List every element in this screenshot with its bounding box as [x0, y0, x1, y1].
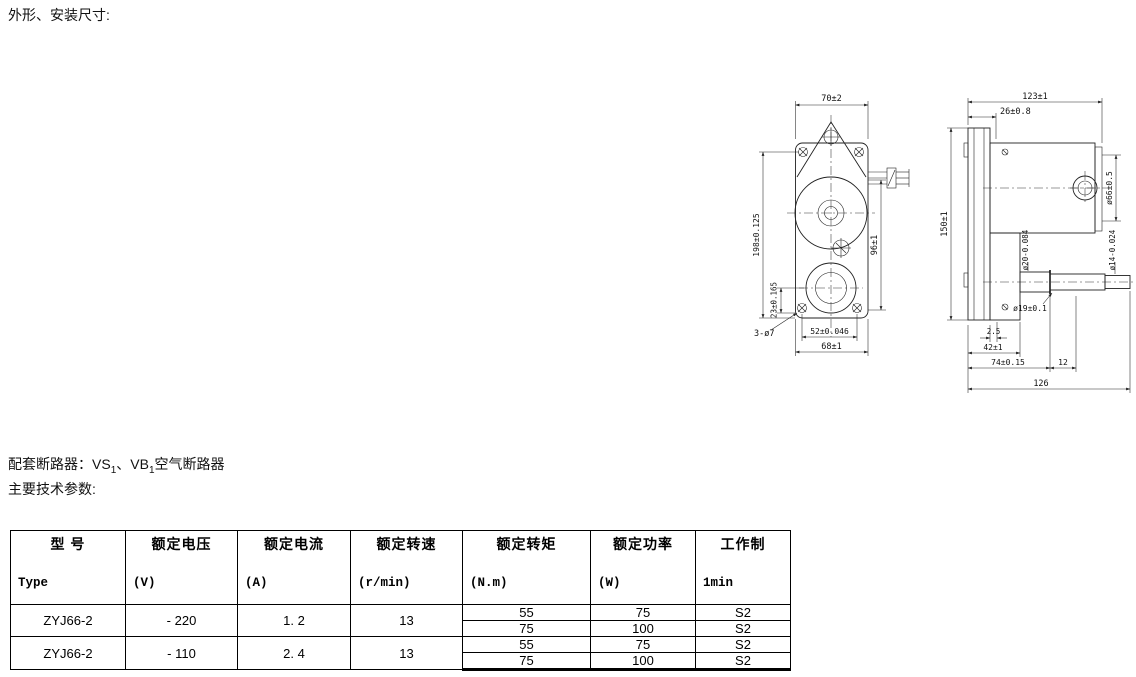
header-speed-en: (r/min)	[351, 576, 462, 590]
header-voltage: 额定电压(V)	[126, 531, 238, 605]
dim-case-length: 42±1	[983, 343, 1002, 352]
dim-length-overall: 126	[1033, 379, 1048, 389]
table-header-row: 型 号Type 额定电压(V) 额定电流(A) 额定转速(r/min) 额定转矩…	[11, 531, 791, 605]
header-type-en: Type	[11, 576, 125, 590]
cell-torque: 55	[463, 605, 591, 621]
cell-voltage: - 110	[126, 637, 238, 670]
cell-torque: 75	[463, 621, 591, 637]
cell-duty: S2	[696, 653, 791, 670]
cell-duty: S2	[696, 605, 791, 621]
header-duty-cn: 工作制	[696, 531, 790, 554]
dim-front-height-overall: 198±0.125	[752, 213, 761, 257]
cell-torque: 55	[463, 637, 591, 653]
cell-power: 75	[591, 637, 696, 653]
header-current: 额定电流(A)	[238, 531, 351, 605]
header-torque: 额定转矩(N.m)	[463, 531, 591, 605]
header-power-cn: 额定功率	[591, 531, 695, 554]
header-power-en: (W)	[591, 576, 695, 590]
side-view-dimensions: 123±1 26±0.8 150±1 ø66±0.5 ø20-0.084 ø14…	[940, 92, 1130, 393]
terminal-wires	[868, 168, 909, 188]
dim-side-body-dia: ø66±0.5	[1105, 171, 1114, 205]
header-speed: 额定转速(r/min)	[351, 531, 463, 605]
dim-front-height-body: 96±1	[870, 235, 880, 255]
header-voltage-cn: 额定电压	[126, 531, 237, 554]
motor-front-outline	[787, 115, 909, 337]
front-view-drawing: 70±2 198±0.125 96±1 23±0.165 52±0.046 68…	[735, 85, 930, 377]
dim-side-length-top: 123±1	[1022, 92, 1048, 102]
cell-voltage: - 220	[126, 605, 238, 637]
dim-plate-thickness: 2.5	[987, 327, 1001, 336]
dim-shoulder-length: 74±0.15	[991, 358, 1025, 367]
breaker-note-text-3: 空气断路器	[155, 456, 225, 472]
cell-current: 2. 4	[238, 637, 351, 670]
specs-table: 型 号Type 额定电压(V) 额定电流(A) 额定转速(r/min) 额定转矩…	[10, 530, 791, 671]
header-current-en: (A)	[238, 576, 350, 590]
cell-torque: 75	[463, 653, 591, 670]
datasheet-page: 外形、安装尺寸:	[0, 0, 1136, 677]
cell-duty: S2	[696, 637, 791, 653]
header-type-cn: 型 号	[11, 531, 125, 554]
dim-side-plate-to-body: 26±0.8	[1000, 107, 1031, 117]
cell-power: 75	[591, 605, 696, 621]
table-row: ZYJ66-2 - 110 2. 4 13 55 75 S2	[11, 637, 791, 653]
cell-type: ZYJ66-2	[11, 605, 126, 637]
front-view-dimensions: 70±2 198±0.125 96±1 23±0.165 52±0.046 68…	[752, 94, 886, 356]
front-holes-note: 3-ø7	[754, 329, 774, 339]
header-current-cn: 额定电流	[238, 531, 350, 554]
header-voltage-en: (V)	[126, 576, 237, 590]
dim-shaft-step-dia: ø20-0.084	[1021, 229, 1030, 270]
dim-step-length: 12	[1058, 358, 1068, 367]
cell-power: 100	[591, 621, 696, 637]
cell-speed: 13	[351, 605, 463, 637]
header-torque-en: (N.m)	[463, 576, 590, 590]
cell-power: 100	[591, 653, 696, 670]
breaker-note-text-2: 、VB	[116, 456, 149, 472]
breaker-note: 配套断路器：VS1、VB1空气断路器	[8, 456, 225, 479]
motor-side-outline	[964, 128, 1135, 320]
breaker-note-text: 配套断路器：VS	[8, 456, 111, 472]
header-power: 额定功率(W)	[591, 531, 696, 605]
dim-hub-dia: ø19±0.1	[1013, 304, 1047, 313]
dim-front-offset-bottom: 23±0.165	[770, 282, 779, 318]
dim-front-width-top: 70±2	[821, 94, 841, 104]
section-title-params: 主要技术参数:	[8, 481, 96, 498]
cell-type: ZYJ66-2	[11, 637, 126, 670]
side-view-drawing: 123±1 26±0.8 150±1 ø66±0.5 ø20-0.084 ø14…	[935, 85, 1136, 400]
dim-side-height-overall: 150±1	[940, 211, 950, 237]
header-torque-cn: 额定转矩	[463, 531, 590, 554]
dim-front-width-bottom: 68±1	[821, 342, 841, 352]
header-duty: 工作制1min	[696, 531, 791, 605]
dim-shaft-end-dia: ø14-0.024	[1108, 229, 1117, 270]
dim-front-hole-span: 52±0.046	[810, 327, 849, 336]
header-speed-cn: 额定转速	[351, 531, 462, 554]
cell-duty: S2	[696, 621, 791, 637]
cell-current: 1. 2	[238, 605, 351, 637]
section-title-dimensions: 外形、安装尺寸:	[8, 7, 110, 24]
header-duty-en: 1min	[696, 576, 790, 590]
cell-speed: 13	[351, 637, 463, 670]
header-type: 型 号Type	[11, 531, 126, 605]
table-row: ZYJ66-2 - 220 1. 2 13 55 75 S2	[11, 605, 791, 621]
